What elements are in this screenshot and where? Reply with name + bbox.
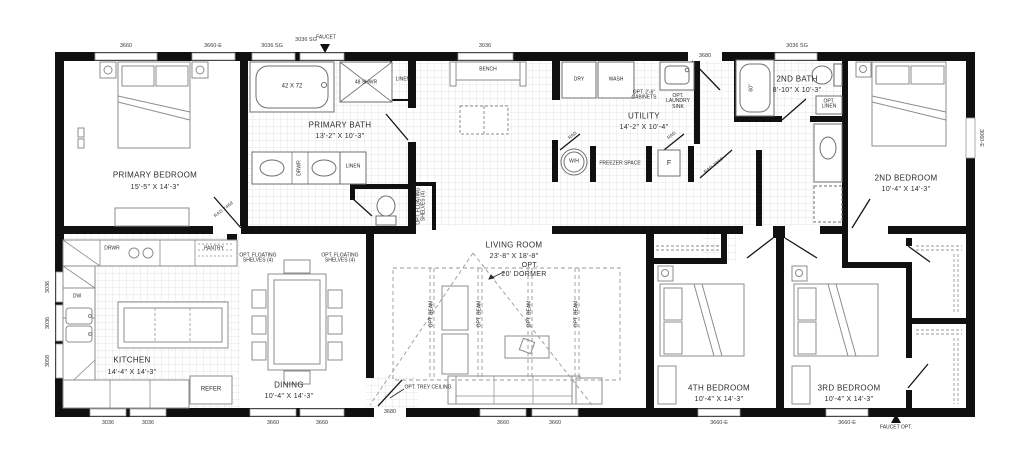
- shower-label: 48 SHWR: [355, 80, 377, 86]
- utility-dims: 14'-2" X 10'-4": [620, 124, 669, 132]
- pantry-label: PANTRY: [204, 246, 224, 252]
- opt-cabinets-label: OPT. 2'-6" CABINETS: [627, 91, 661, 102]
- fourth-bedroom-dims: 10'-4" X 14'-3": [695, 396, 744, 404]
- primary-bath-dims: 13'-2" X 10'-3": [316, 133, 365, 141]
- door-size-front: 3680: [382, 409, 398, 415]
- vanity-drawer-label: DRWR: [297, 160, 303, 175]
- water-heater-label: W/H: [569, 159, 579, 165]
- window-size-top-1: 3660: [120, 43, 132, 49]
- floating-shelves-label-c: OPT. FLOATING SHELVES (4): [417, 184, 428, 228]
- window-size-top-3: 3036 SG: [261, 43, 283, 49]
- window-size-bottom-1: 3036: [102, 420, 114, 426]
- freezer-space-label: FREEZER SPACE: [598, 161, 642, 166]
- third-bedroom-dims: 10'-4" X 14'-3": [825, 396, 874, 404]
- opt-beam-label-2: OPT. BEAM: [477, 301, 483, 328]
- second-bedroom-label: 2ND BEDROOM: [875, 175, 938, 184]
- opt-laundry-sink-label: OPT. LAUNDRY SINK: [662, 94, 694, 110]
- kitchen-label: KITCHEN: [113, 357, 150, 366]
- primary-bedroom-label: PRIMARY BEDROOM: [113, 172, 197, 181]
- fourth-bedroom-label: 4TH BEDROOM: [688, 385, 750, 394]
- window-size-top-6: 3036 SG: [786, 43, 808, 49]
- opt-beam-label-4: OPT. BEAM: [574, 301, 580, 328]
- window-size-bottom-2: 3036: [142, 420, 154, 426]
- primary-bedroom-furniture: [78, 62, 208, 226]
- dining-dims: 10'-4" X 14'-3": [265, 393, 314, 401]
- floating-shelves-label-a: OPT. FLOATING SHELVES (4): [235, 254, 281, 265]
- kitchen-drawer-label: DRWR: [104, 246, 119, 252]
- second-bath-label: 2ND BATH: [776, 76, 817, 85]
- refrigerator-label: REFER: [201, 387, 221, 394]
- living-room-dims: 23'-8" X 18'-8": [490, 253, 539, 261]
- trey-ceiling-label: OPT. TREY CEILING: [404, 385, 451, 391]
- dining-label: DINING: [274, 382, 304, 391]
- window-size-left-2: 3036: [45, 317, 51, 329]
- faucet-top-label: FAUCET: [316, 35, 336, 41]
- window-size-bottom-6: 3660: [549, 420, 561, 426]
- window-size-bottom-8: 3660-E: [838, 420, 856, 426]
- second-bedroom-furniture: [856, 62, 946, 146]
- window-size-bottom-7: 3660-E: [710, 420, 728, 426]
- living-room-opt: OPT.: [522, 262, 539, 270]
- bench-label: BENCH: [479, 67, 497, 73]
- window-size-bottom-5: 3660: [497, 420, 509, 426]
- tub-size-label: 42 X 72: [282, 84, 303, 91]
- second-bath-dims: 8'-10" X 10'-3": [773, 87, 822, 95]
- primary-bath-label: PRIMARY BATH: [309, 122, 372, 131]
- utility-label: UTILITY: [628, 113, 660, 122]
- window-size-right: 3060-E: [978, 129, 984, 147]
- primary-bedroom-dims: 15'-5" X 14'-3": [131, 184, 180, 192]
- opt-beam-label-3: OPT. BEAM: [527, 301, 533, 328]
- second-bedroom-dims: 10'-4" X 14'-3": [882, 186, 931, 194]
- closet-rods: [916, 246, 962, 404]
- washer-label: WASH: [609, 77, 624, 83]
- dining-furniture: [252, 260, 342, 384]
- third-bedroom-label: 3RD BEDROOM: [818, 385, 881, 394]
- window-size-bottom-3: 3660: [267, 420, 279, 426]
- floor-plan: PRIMARY BEDROOM 15'-5" X 14'-3" PRIMARY …: [0, 0, 1024, 468]
- kitchen-fixtures: [63, 240, 237, 408]
- bedroom4-furniture: [656, 246, 744, 404]
- window-size-bottom-4: 3660: [316, 420, 328, 426]
- dormer-label: 20' DORMER: [501, 271, 546, 279]
- door-size-rear: 3680: [697, 53, 713, 59]
- window-size-left-3: 3058: [45, 355, 51, 367]
- opt-beam-label-1: OPT. BEAM: [429, 301, 435, 328]
- dishwasher-label: DW: [73, 294, 81, 300]
- opt-linen-label: OPT. LINEN: [818, 100, 840, 111]
- window-size-top-2: 3660-E: [204, 43, 222, 49]
- linen-upper-label: LINEN: [396, 77, 411, 83]
- dryer-label: DRY: [574, 77, 584, 83]
- freezer-box-label: F: [667, 160, 671, 168]
- window-size-top-5: 3036: [479, 43, 491, 49]
- window-size-top-4: 3036 SG: [295, 37, 317, 43]
- living-room-label: LIVING ROOM: [486, 242, 543, 251]
- tub60-label: 60": [749, 84, 755, 91]
- window-size-left-1: 3036: [45, 281, 51, 293]
- faucet-opt-label: FAUCET OPT.: [879, 425, 913, 430]
- kitchen-dims: 14'-4" X 14'-3": [108, 369, 157, 377]
- linen-vanity-label: LINEN: [346, 164, 361, 170]
- floating-shelves-label-b: OPT. FLOATING SHELVES (4): [317, 254, 363, 265]
